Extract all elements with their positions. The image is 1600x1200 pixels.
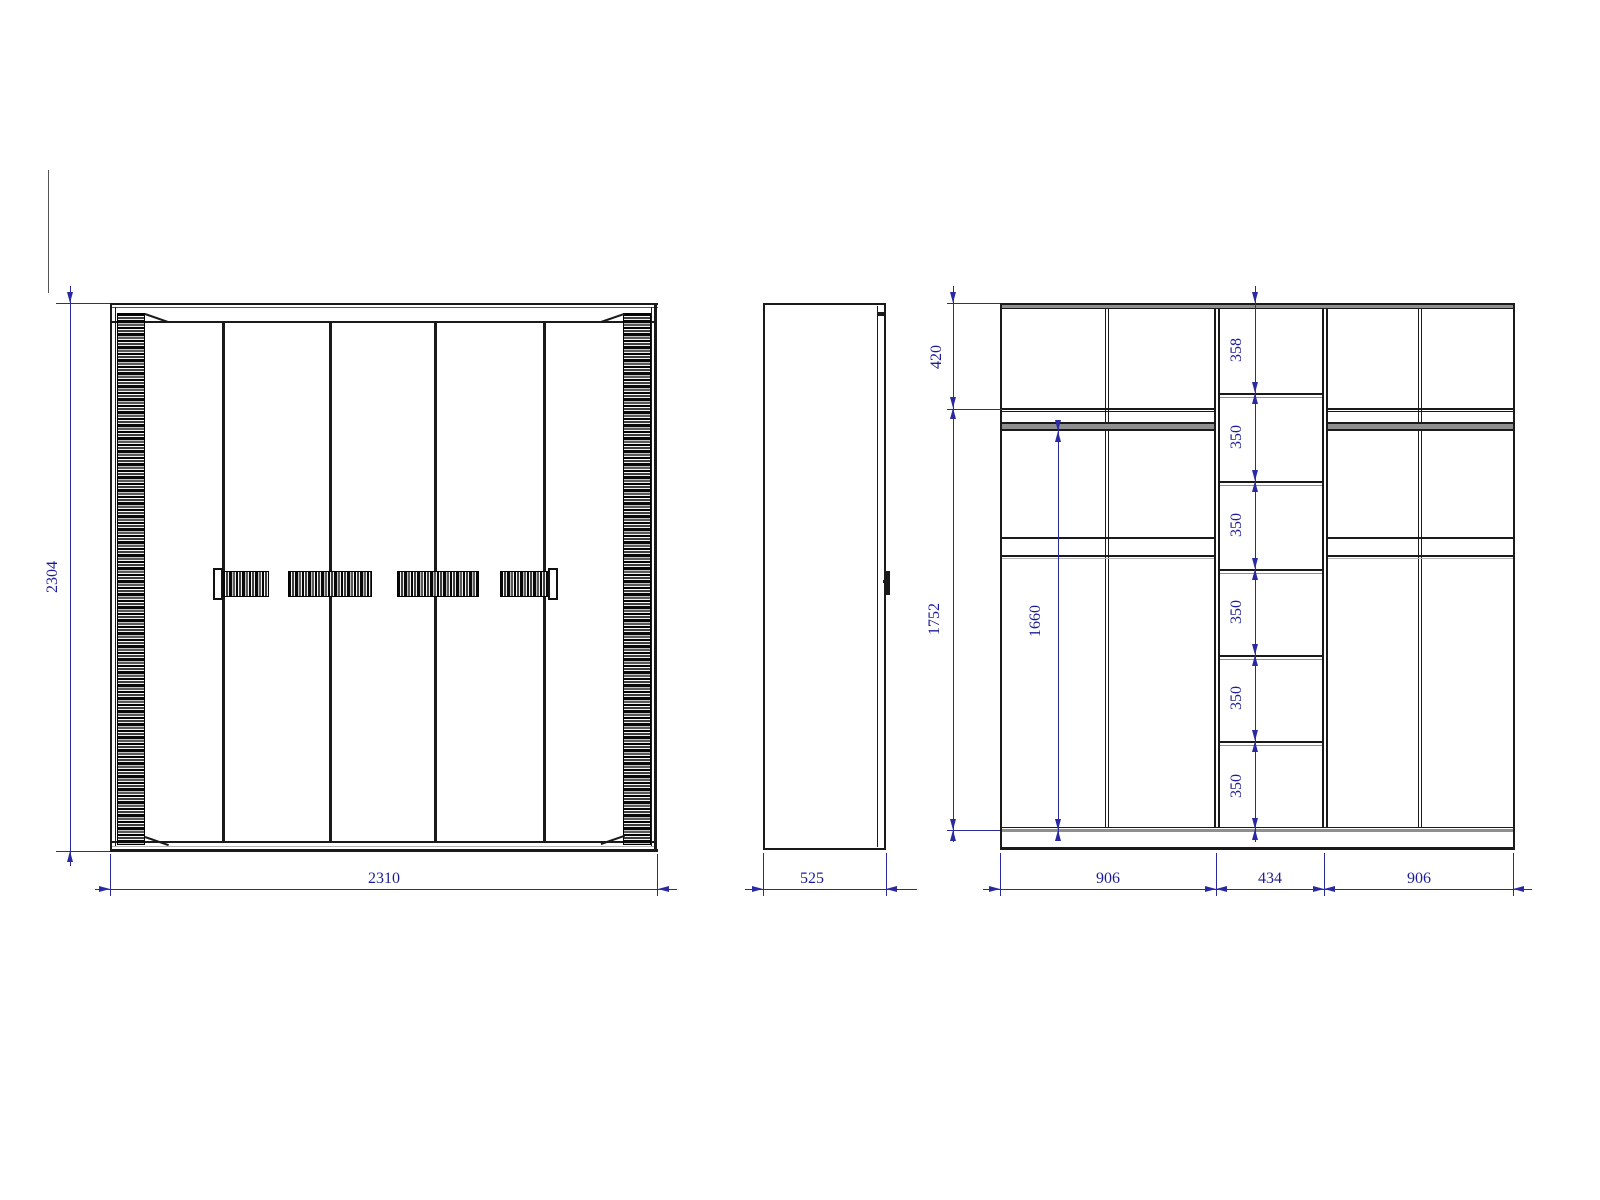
rail-line <box>1002 555 1214 557</box>
arrowhead <box>950 819 956 830</box>
shelf-line <box>1328 411 1513 412</box>
dim-label-shelf: 358 <box>1227 328 1247 372</box>
arrowhead <box>1252 382 1258 393</box>
dim-label-shelf: 350 <box>1227 764 1247 808</box>
front-left-edge <box>110 303 112 851</box>
arrowhead <box>1055 431 1061 442</box>
side-top-bracket <box>877 312 886 316</box>
arrowhead <box>1252 829 1258 840</box>
shelf-line <box>1002 408 1214 410</box>
dim-label-hanging-height: 1660 <box>1026 599 1046 643</box>
front-right-inner-line <box>651 307 652 847</box>
rail-line <box>1002 537 1214 539</box>
dim-label-shelf: 350 <box>1227 415 1247 459</box>
arrowhead <box>1205 886 1216 892</box>
arrowhead <box>1055 420 1061 431</box>
shelf-line <box>1002 411 1214 412</box>
section-divider <box>1105 308 1106 827</box>
arrowhead <box>950 292 956 303</box>
arrowhead <box>989 886 1000 892</box>
side-door-line <box>877 306 878 847</box>
arrowhead <box>1252 569 1258 580</box>
front-top-inner-line <box>110 307 658 308</box>
wardrobe-technical-drawing: 2304 2310 525 <box>0 0 1600 1200</box>
arrowhead <box>1252 730 1258 741</box>
front-left-inner-line <box>115 307 116 847</box>
dim-label-interior-height: 1752 <box>925 597 945 641</box>
dim-label-front-width: 2310 <box>354 869 414 889</box>
arrowhead <box>1513 886 1524 892</box>
section-divider <box>1108 308 1109 827</box>
arrowhead <box>1252 393 1258 404</box>
dim-label-depth: 525 <box>782 869 842 889</box>
arrowhead <box>658 886 669 892</box>
arrowhead <box>1055 830 1061 841</box>
column-shelf-underside <box>1220 659 1322 660</box>
column-shelf <box>1220 481 1322 483</box>
ribbed-trim-right <box>623 313 651 845</box>
carcass-right-edge <box>1513 303 1515 849</box>
dim-line-widths <box>983 889 1532 890</box>
front-bottom-edge <box>110 849 658 852</box>
arrowhead <box>950 397 956 408</box>
arrowhead <box>1216 886 1227 892</box>
dim-label-top-section: 420 <box>927 335 947 379</box>
arrowhead <box>1252 292 1258 303</box>
arrowhead <box>1252 481 1258 492</box>
dim-line-height <box>70 286 71 866</box>
column-shelf <box>1220 393 1322 395</box>
column-shelf <box>1220 569 1322 571</box>
hanging-rod-bottom <box>1002 429 1214 431</box>
arrowhead <box>950 830 956 841</box>
column-shelf <box>1220 655 1322 657</box>
middle-band-endcap-left <box>213 568 223 600</box>
dim-label-shelf: 350 <box>1227 676 1247 720</box>
carcass-top-panel-line <box>1002 308 1513 309</box>
front-plinth-line <box>112 846 654 847</box>
hanging-rod-bottom <box>1328 429 1513 431</box>
arrowhead <box>1252 644 1258 655</box>
extension-line <box>947 303 1000 304</box>
arrowhead <box>1252 741 1258 752</box>
middle-band-segment <box>500 571 549 597</box>
arrowhead <box>1252 470 1258 481</box>
rail-shadow-line <box>1002 558 1214 559</box>
extension-line <box>947 409 1002 410</box>
ribbed-trim-left <box>117 313 145 845</box>
dim-line-hanging <box>1058 425 1059 838</box>
arrowhead <box>67 851 73 862</box>
side-top-edge <box>763 303 885 305</box>
carcass-bottom-edge <box>1000 847 1515 850</box>
extension-line <box>56 851 110 852</box>
extension-line <box>56 303 110 304</box>
dim-label-section-width: 906 <box>1078 869 1138 889</box>
column-shelf-underside <box>1220 485 1322 486</box>
side-bottom-edge <box>763 848 886 850</box>
rail-line <box>1328 537 1513 539</box>
column-shelf-underside <box>1220 573 1322 574</box>
middle-band-segment <box>288 571 372 597</box>
column-shelf <box>1220 741 1322 743</box>
section-divider <box>1418 308 1419 827</box>
middle-band-endcap-right <box>548 568 558 600</box>
door-handle <box>886 571 890 595</box>
front-right-edge <box>654 303 657 851</box>
middle-band-segment <box>222 571 269 597</box>
extension-line <box>110 854 111 896</box>
dim-label-column-width: 434 <box>1240 869 1300 889</box>
dim-label-shelf: 350 <box>1227 503 1247 547</box>
dim-label-shelf: 350 <box>1227 590 1247 634</box>
arrowhead <box>1252 655 1258 666</box>
dim-label-front-height: 2304 <box>43 555 63 599</box>
front-top-edge <box>110 303 658 305</box>
front-door-top-line <box>112 321 654 323</box>
middle-band-segment <box>397 571 479 597</box>
arrowhead <box>1252 818 1258 829</box>
rail-shadow-line <box>1328 558 1513 559</box>
column-shelf-underside <box>1220 745 1322 746</box>
base-bevel-right <box>601 835 625 845</box>
front-door-bottom-line <box>112 841 654 843</box>
rail-line <box>1328 555 1513 557</box>
arrowhead <box>99 886 110 892</box>
column-wall <box>1322 308 1324 827</box>
carcass-left-edge <box>1000 303 1002 849</box>
dim-label-section-width: 906 <box>1389 869 1449 889</box>
arrowhead <box>752 886 763 892</box>
arrowhead <box>886 886 897 892</box>
construction-line <box>48 170 49 293</box>
column-wall <box>1326 308 1328 827</box>
arrowhead <box>1313 886 1324 892</box>
door-handle-stem <box>883 580 886 583</box>
extension-line <box>947 830 1000 831</box>
dim-line-sections <box>953 286 954 842</box>
arrowhead <box>1055 819 1061 830</box>
arrowhead <box>67 292 73 303</box>
column-wall <box>1214 308 1216 827</box>
column-shelf-underside <box>1220 397 1322 398</box>
section-divider <box>1421 308 1422 827</box>
column-wall <box>1218 308 1220 827</box>
arrowhead <box>1252 558 1258 569</box>
dim-line-width <box>95 889 677 890</box>
shelf-line <box>1328 408 1513 410</box>
arrowhead <box>1324 886 1335 892</box>
side-back-edge <box>763 303 765 850</box>
